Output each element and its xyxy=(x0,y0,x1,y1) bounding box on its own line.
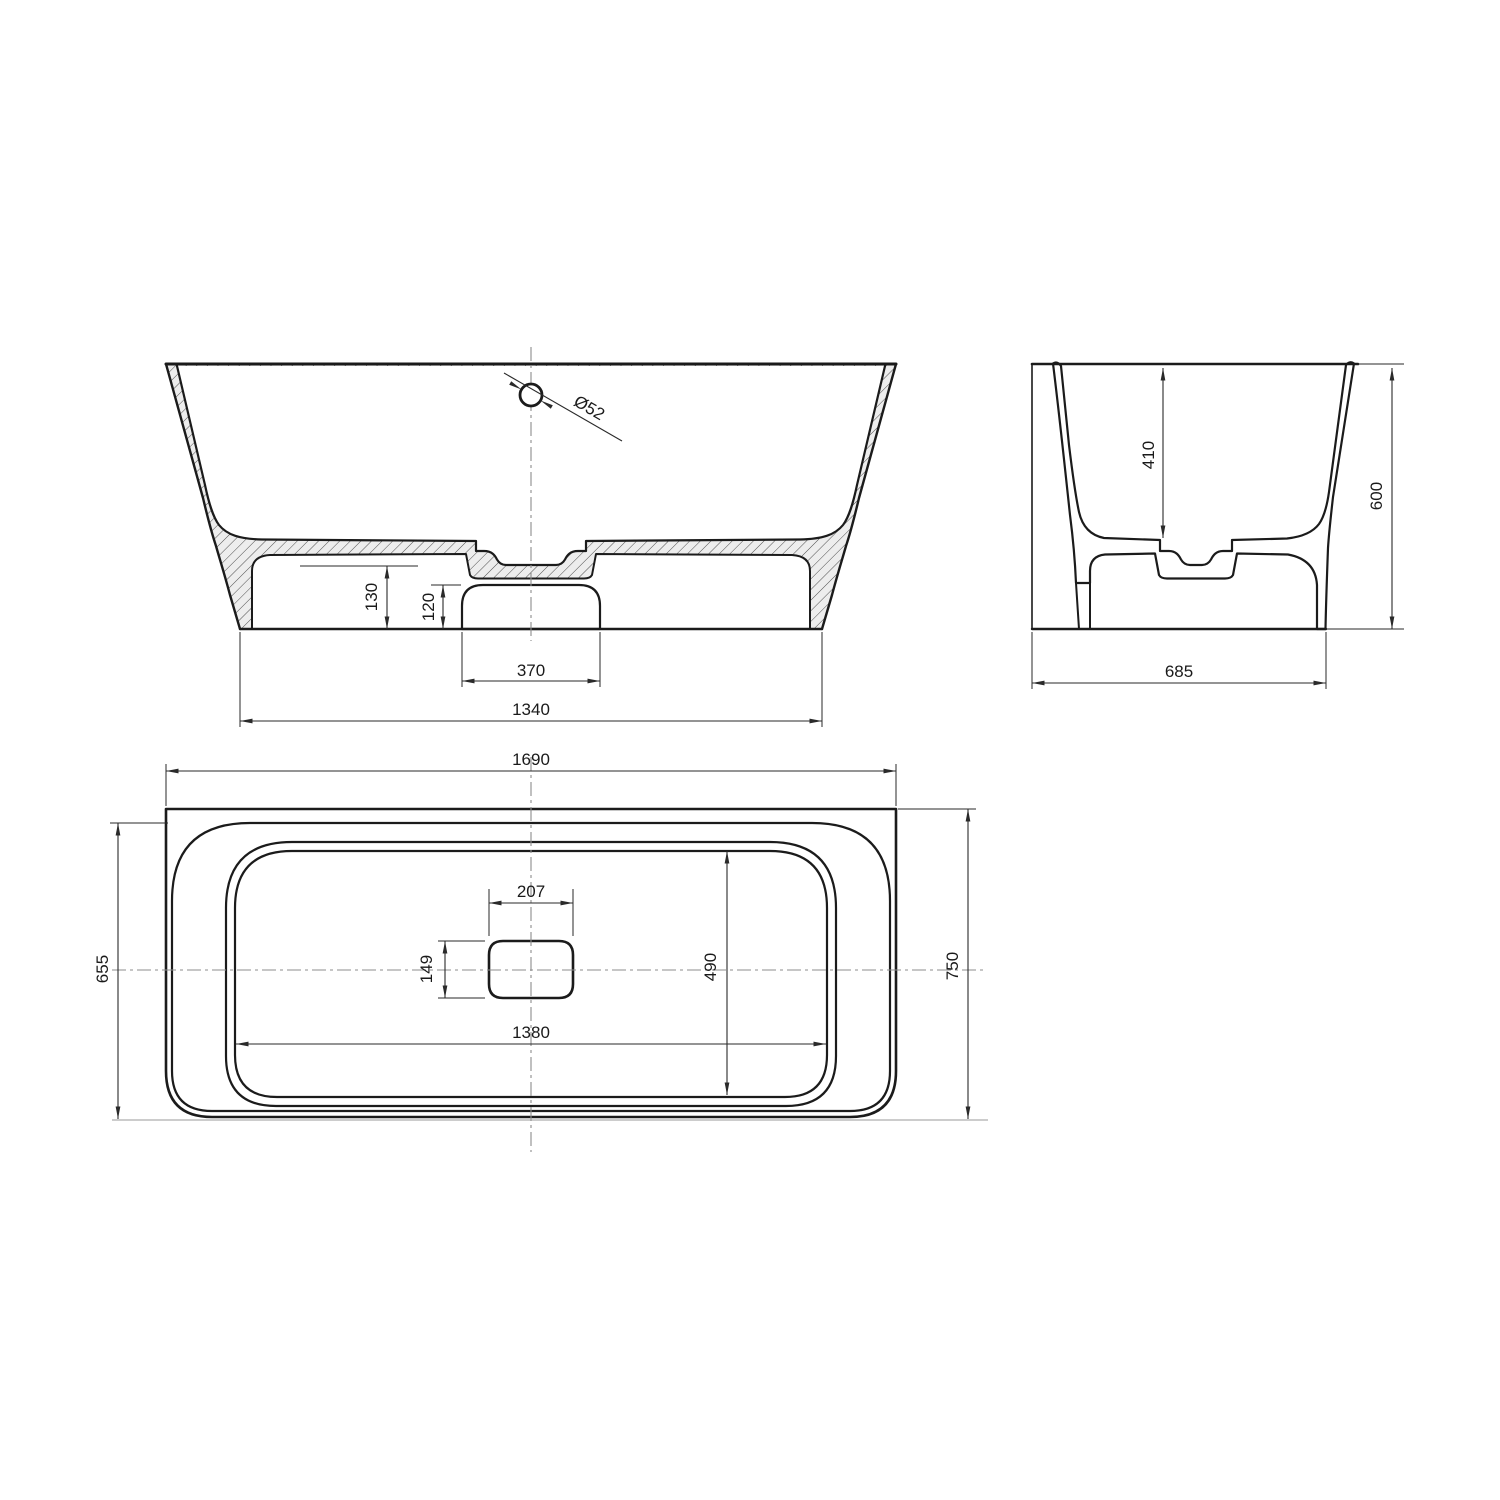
dim-label-floor-length: 1380 xyxy=(512,1023,550,1042)
dim-label-base-width: 1340 xyxy=(512,700,550,719)
side-section-view: 410 600 685 xyxy=(1032,362,1404,689)
front-section-view: Ø52 130 120 370 1340 xyxy=(166,347,896,727)
dim-label-overall-height: 600 xyxy=(1367,482,1386,510)
dim-label-base-depth: 685 xyxy=(1165,662,1193,681)
dim-label-back-width: 655 xyxy=(93,955,112,983)
technical-drawing-page: Ø52 130 120 370 1340 410 600 6 xyxy=(0,0,1500,1500)
bathtub-technical-drawing: Ø52 130 120 370 1340 410 600 6 xyxy=(0,0,1500,1500)
side-wall-section-hatch xyxy=(1053,362,1354,629)
dim-label-overall-depth: 750 xyxy=(943,952,962,980)
dim-label-drain-recess-length: 207 xyxy=(517,882,545,901)
dim-label-interior-depth: 410 xyxy=(1139,441,1158,469)
dim-label-recess-width: 370 xyxy=(517,661,545,680)
dim-label-drain-recess-width: 149 xyxy=(417,955,436,983)
dim-label-overall-length: 1690 xyxy=(512,750,550,769)
plan-view: 1690 655 750 207 149 490 1380 xyxy=(93,750,988,1152)
dim-label-floor-depth: 490 xyxy=(701,953,720,981)
side-leg xyxy=(1076,583,1090,629)
dim-label-recess-height: 120 xyxy=(419,593,438,621)
drain-hole xyxy=(520,384,542,406)
dim-label-floor-height: 130 xyxy=(362,583,381,611)
